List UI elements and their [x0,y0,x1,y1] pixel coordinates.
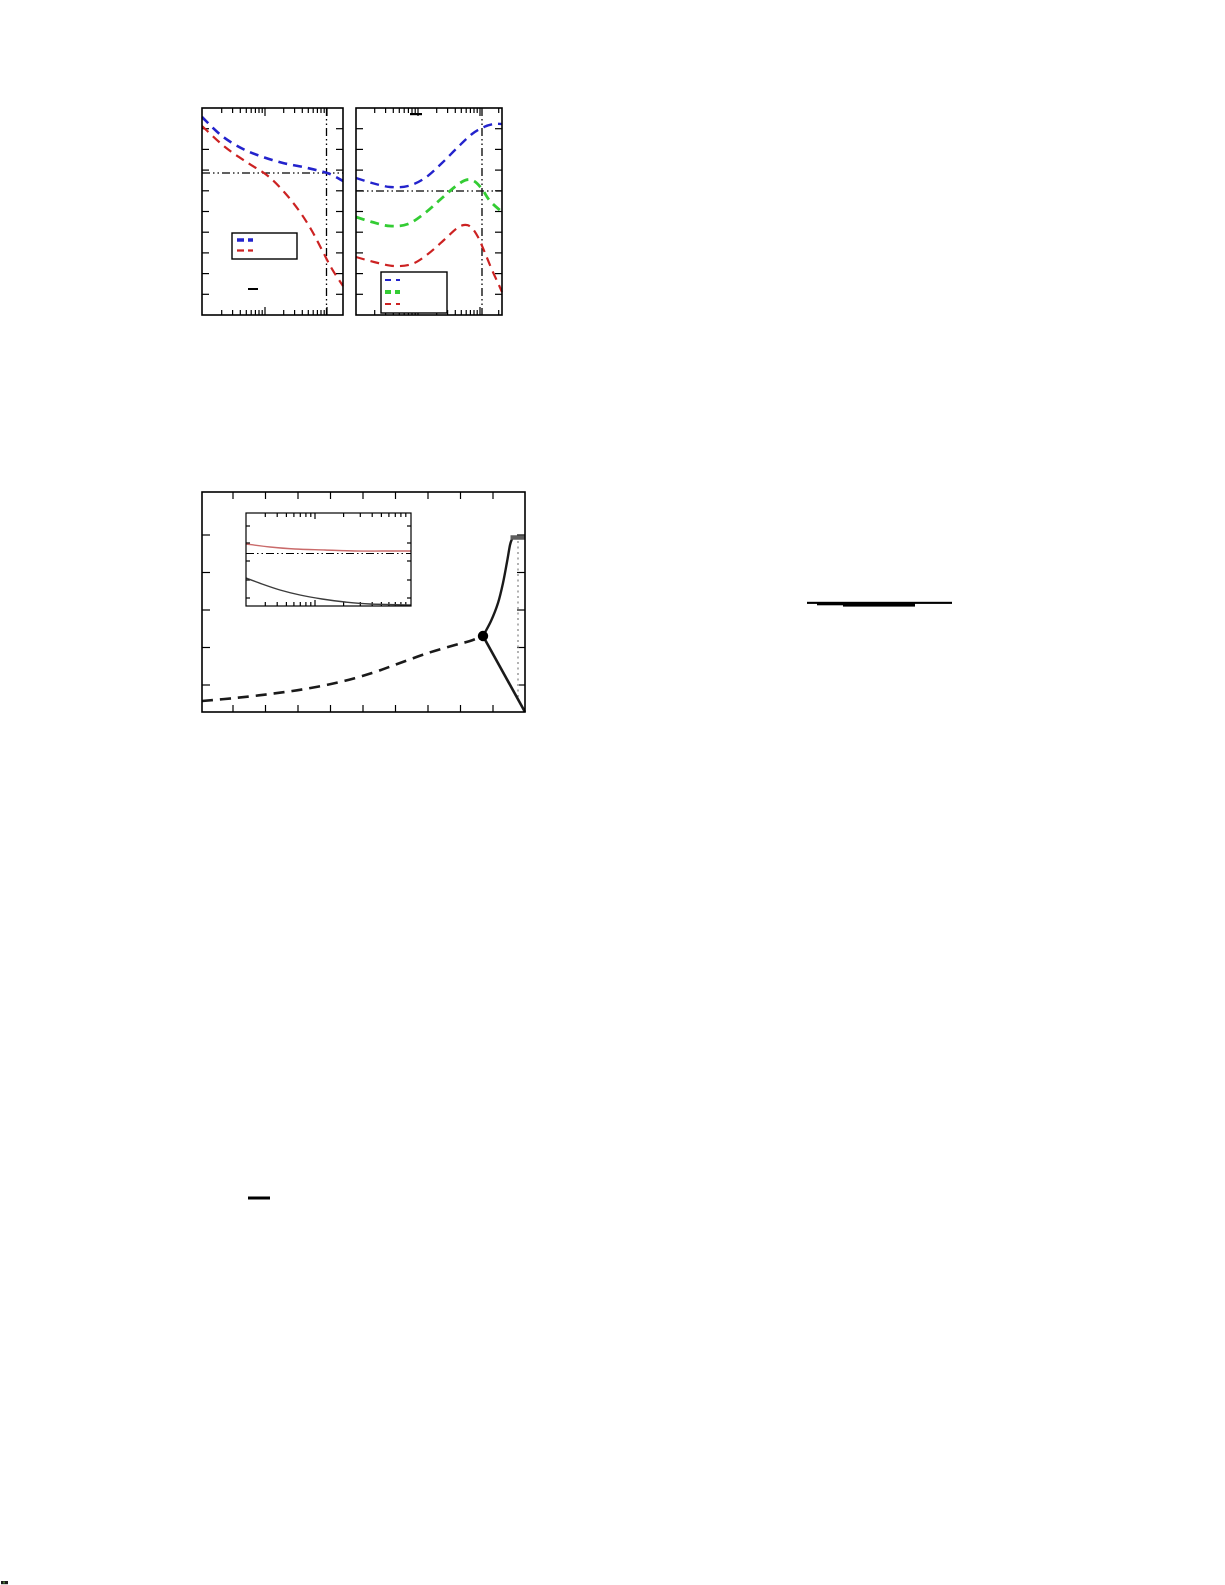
plot-frame [202,108,343,315]
plots-layer [202,108,525,712]
text-fragment-bar [410,113,422,115]
article-page [0,0,1225,1585]
text-fragment-bar [248,288,258,290]
curve-green-dashed [356,180,502,227]
curve-upper-branch-solid [483,539,512,636]
curve-lower-branch-dashed [202,636,483,701]
corner-mark-pixel [3,1582,5,1584]
plot-top-left [202,108,343,315]
branch-point-dot [478,631,488,641]
equation-fraction-bar-small [248,1197,270,1200]
figures-canvas [0,0,1225,1585]
plot-frame [202,492,525,712]
plot-frame [246,513,411,606]
equation-fraction-bar-large [843,603,915,607]
curve-blue-dashed [356,124,502,188]
corner-mark [1,1581,8,1584]
equation-fraction-bar-large [817,603,843,605]
plot-main-inset [246,513,411,606]
curve-red-dashed [202,126,343,286]
legend-box [232,233,297,259]
curve-blue-dashed [202,117,343,181]
plot-top-right [356,108,502,315]
curve-inset-red-curve [246,544,411,551]
equation-fragments-layer [248,602,952,1200]
plot-main [202,492,525,712]
curve-inset-black-curve [246,578,411,605]
